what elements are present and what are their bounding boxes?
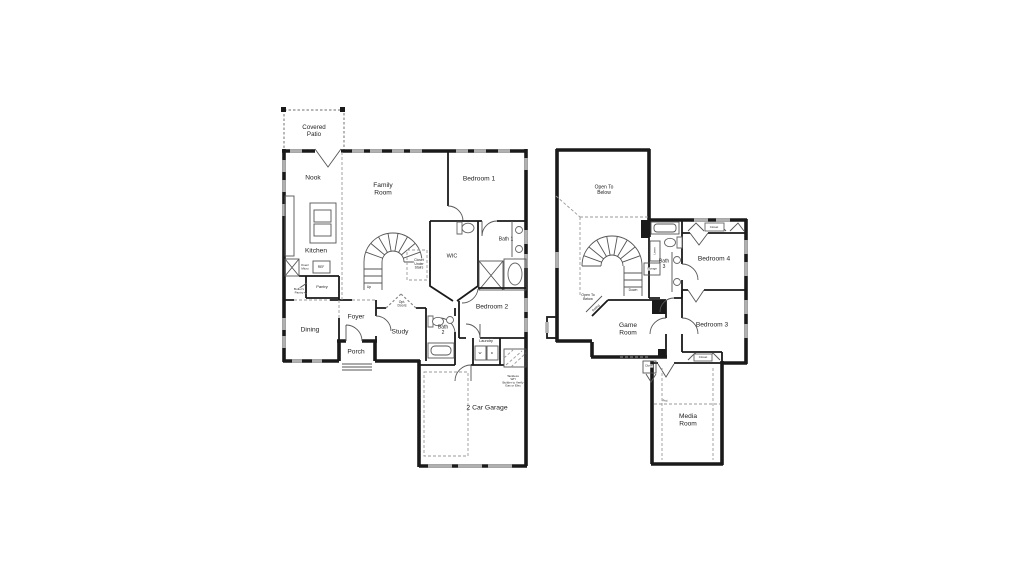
second-floor-linework — [547, 149, 747, 465]
staircase-second-floor — [582, 236, 642, 296]
floorplan-svg — [0, 0, 1024, 576]
covered-patio-outline — [284, 110, 344, 150]
floorplan-image: Covered Patio Nook Family Room Bedroom 1… — [0, 0, 1024, 576]
first-floor-linework — [281, 107, 527, 467]
staircase-first-floor — [364, 233, 427, 290]
